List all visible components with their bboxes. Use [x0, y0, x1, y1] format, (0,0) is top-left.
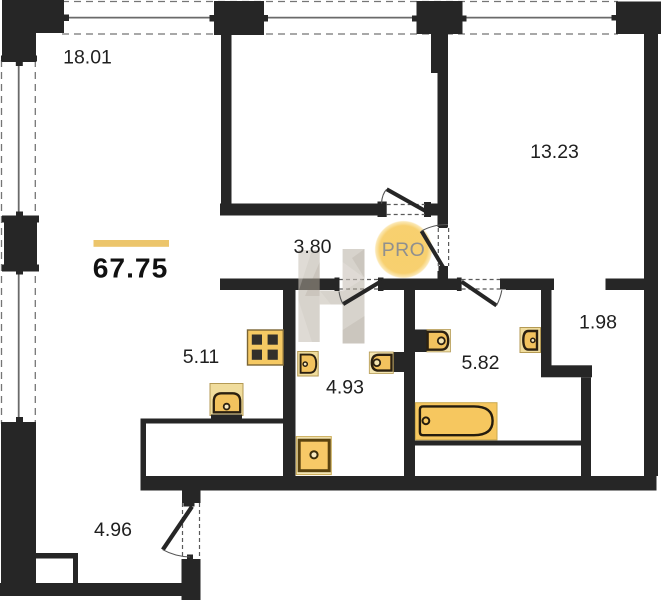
svg-text:5.11: 5.11: [183, 346, 220, 368]
svg-text:18.01: 18.01: [63, 47, 112, 69]
svg-text:4.93: 4.93: [326, 377, 364, 399]
svg-text:1.98: 1.98: [579, 312, 617, 334]
svg-text:5.82: 5.82: [462, 352, 500, 374]
svg-text:67.75: 67.75: [93, 252, 169, 284]
svg-text:3.80: 3.80: [294, 236, 332, 258]
svg-text:4.96: 4.96: [94, 519, 132, 541]
svg-text:13.23: 13.23: [530, 141, 579, 163]
svg-text:PRO: PRO: [382, 239, 425, 261]
